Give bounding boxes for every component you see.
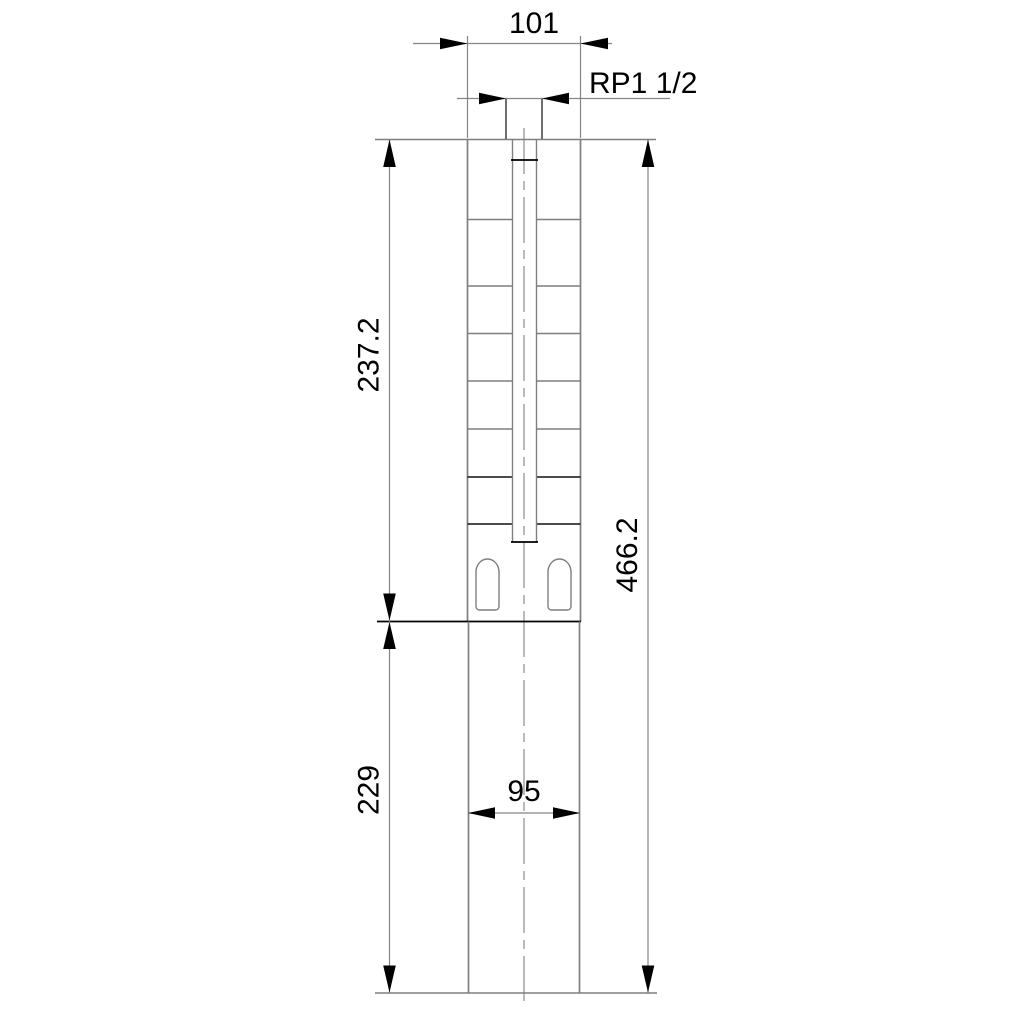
dimension-motor-length-label: 229 bbox=[353, 765, 386, 815]
dimension-total-length: 466.2 bbox=[611, 140, 654, 994]
arrow-up-icon bbox=[383, 140, 396, 168]
arrow-down-icon bbox=[383, 594, 396, 621]
dimension-motor-width-label: 95 bbox=[507, 775, 540, 808]
dimension-total-length-label: 466.2 bbox=[611, 517, 644, 592]
arrow-left-icon bbox=[468, 807, 495, 818]
arrow-right-icon bbox=[479, 93, 506, 104]
arrow-left-icon bbox=[581, 38, 609, 49]
suction-slot-right bbox=[548, 559, 571, 610]
dimension-pump-length-label: 237.2 bbox=[353, 317, 386, 392]
dimension-thread-label: RP1 1/2 bbox=[589, 67, 697, 100]
dimension-thread-connection: RP1 1/2 bbox=[457, 67, 697, 139]
arrow-up-icon bbox=[383, 622, 396, 649]
arrow-left-icon bbox=[542, 93, 569, 104]
arrow-up-icon bbox=[642, 140, 655, 168]
dimension-pump-length: 237.2 bbox=[353, 140, 396, 994]
dimension-top-width-label: 101 bbox=[509, 7, 559, 40]
dimension-top-width: 101 bbox=[413, 7, 612, 138]
arrow-right-icon bbox=[553, 807, 580, 818]
arrow-down-icon bbox=[642, 966, 655, 993]
arrow-right-icon bbox=[440, 38, 468, 49]
drawing-svg: 101 RP1 1/2 237.2 229 466.2 95 bbox=[0, 0, 1024, 1024]
dimension-motor-width: 95 bbox=[468, 775, 580, 819]
arrow-down-icon bbox=[383, 966, 396, 993]
technical-drawing: 101 RP1 1/2 237.2 229 466.2 95 bbox=[0, 0, 1024, 1024]
suction-slot-left bbox=[476, 559, 499, 610]
